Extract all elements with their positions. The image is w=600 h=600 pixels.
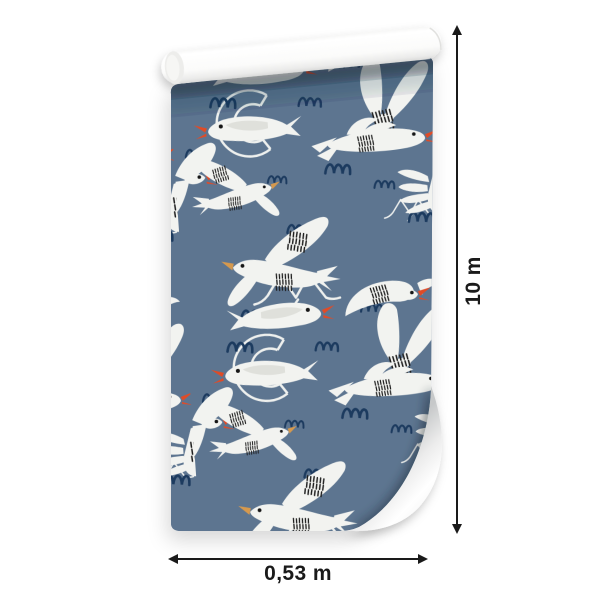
width-label: 0,53 m bbox=[168, 562, 428, 586]
dimension-line bbox=[456, 35, 458, 524]
arrow-down-icon bbox=[452, 524, 462, 534]
wallpaper-roll-graphic bbox=[0, 0, 600, 600]
arrow-up-icon bbox=[452, 25, 462, 35]
product-mockup: 10 m 0,53 m bbox=[0, 0, 600, 600]
height-label: 10 m bbox=[461, 246, 487, 316]
dimension-line bbox=[178, 558, 418, 560]
